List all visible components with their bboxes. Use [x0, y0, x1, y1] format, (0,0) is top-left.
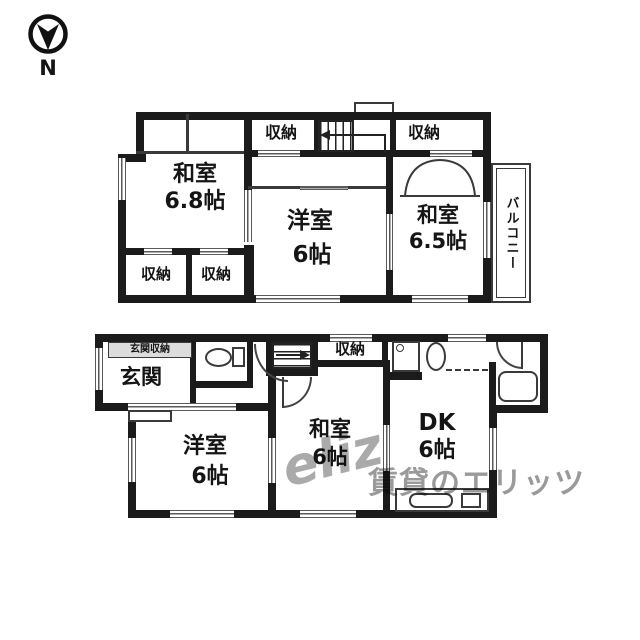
- closet-label-right: 収納: [395, 123, 453, 143]
- window: [95, 348, 103, 390]
- genkan-storage-strip: 玄関収納: [108, 342, 192, 358]
- wall: [318, 360, 388, 367]
- wall: [196, 381, 253, 388]
- toilet-icon: [205, 348, 232, 367]
- closet-label-lower: 収納: [322, 340, 378, 358]
- door-arc-bath: [496, 342, 523, 369]
- balcony: バルコニー: [491, 163, 531, 303]
- balcony-label: バルコニー: [502, 196, 521, 271]
- window: [170, 510, 234, 518]
- washbasin-icon: [426, 342, 446, 371]
- closet-door: [200, 248, 228, 255]
- room-label-genkan: 玄関: [103, 364, 179, 390]
- balcony-inner-rail: バルコニー: [496, 168, 526, 298]
- sliding-door: [383, 425, 390, 471]
- wall: [388, 372, 422, 380]
- wall: [489, 405, 548, 413]
- stairs-arrow-icon: [300, 350, 310, 360]
- door-leaf-line: [282, 377, 284, 408]
- room-label-youshitsu-upper: 洋室: [264, 208, 356, 234]
- door-arc-washitsu: [282, 377, 312, 408]
- stairs-direction-line: [328, 134, 386, 136]
- kitchen-sink-icon: [409, 493, 453, 508]
- stairs-direction-line: [384, 134, 386, 152]
- room-label-washitsu65: 和室: [398, 203, 478, 227]
- closet-label-bottom-2: 収納: [189, 264, 243, 284]
- genkan-storage-label: 玄関収納: [130, 345, 170, 355]
- compass-north-label: N: [36, 56, 60, 80]
- closet-door: [144, 248, 172, 255]
- room-label-washitsu68: 和室: [150, 163, 240, 187]
- window: [256, 295, 340, 303]
- room-size-washitsu68: 6.8帖: [143, 190, 247, 214]
- sliding-door: [268, 438, 276, 483]
- stairs-arrow-icon: [320, 130, 330, 140]
- partition-line: [136, 151, 244, 154]
- compass-icon: [26, 13, 70, 59]
- closet-label-bottom-1: 収納: [129, 264, 183, 284]
- floor-plan-canvas: N: [0, 0, 640, 640]
- entrance-step: [128, 410, 172, 422]
- room-label-youshitsu-lower: 洋室: [158, 434, 252, 460]
- sliding-door: [300, 186, 348, 190]
- window: [412, 295, 468, 303]
- room-size-washitsu65: 6.5帖: [392, 229, 484, 253]
- window: [300, 510, 356, 518]
- stove-icon: [461, 493, 481, 508]
- closet-label-top: 収納: [252, 123, 310, 143]
- wall: [540, 334, 548, 412]
- door-leaf-line: [521, 342, 523, 369]
- sliding-door: [258, 150, 300, 157]
- partition-dashed: [446, 369, 488, 371]
- room-size-youshitsu-lower: 6帖: [164, 464, 256, 490]
- partition-line: [186, 114, 189, 152]
- toilet-icon: [232, 347, 245, 367]
- window: [448, 334, 486, 342]
- window: [128, 438, 136, 482]
- window: [118, 158, 126, 200]
- washing-machine-icon: [396, 344, 404, 352]
- room-label-washitsu-lower: 和室: [284, 416, 376, 442]
- wall: [312, 342, 318, 376]
- window: [489, 428, 497, 470]
- room-size-youshitsu-upper: 6帖: [266, 242, 358, 268]
- sliding-door: [172, 403, 236, 411]
- room-size-washitsu-lower: 6帖: [284, 444, 376, 470]
- room-label-dk: DK: [403, 410, 471, 436]
- bathtub-icon: [498, 371, 538, 402]
- room-size-dk: 6帖: [399, 438, 475, 464]
- window: [483, 202, 491, 258]
- closet-double-door-icon: [402, 156, 478, 198]
- wall: [118, 248, 248, 255]
